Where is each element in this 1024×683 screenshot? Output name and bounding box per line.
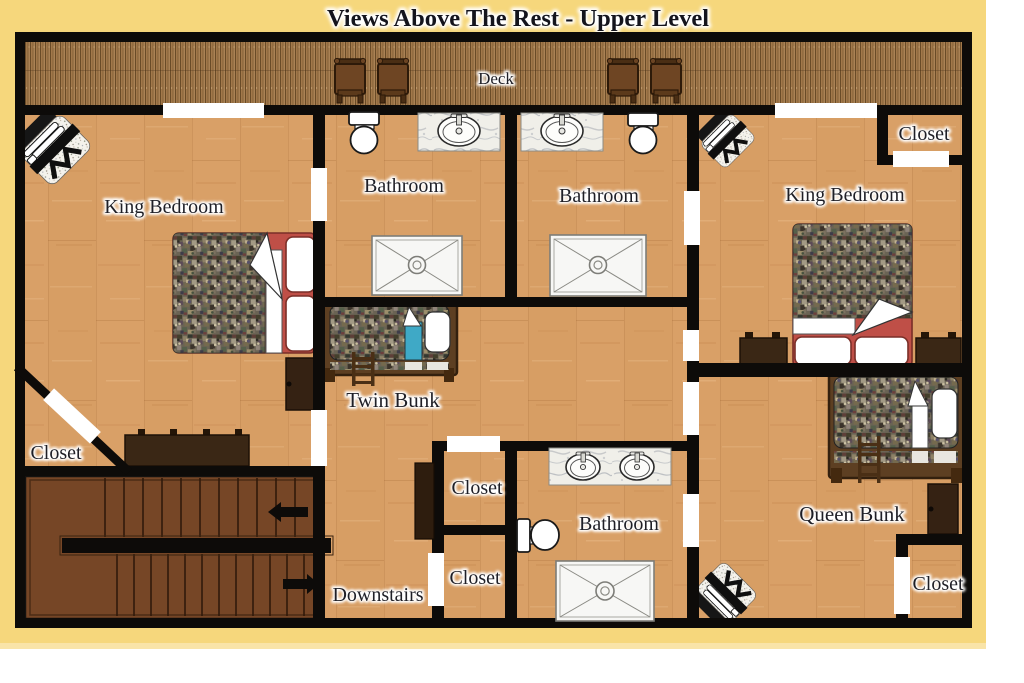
- svg-text:Closet: Closet: [451, 477, 503, 499]
- svg-text:Views Above The Rest - Upper L: Views Above The Rest - Upper Level: [327, 5, 709, 32]
- svg-text:King Bedroom: King Bedroom: [104, 196, 224, 218]
- svg-text:Closet: Closet: [30, 442, 82, 464]
- svg-text:Closet: Closet: [912, 573, 964, 595]
- svg-text:Bathroom: Bathroom: [579, 513, 659, 535]
- svg-text:King Bedroom: King Bedroom: [785, 184, 905, 206]
- svg-text:Queen Bunk: Queen Bunk: [799, 502, 905, 526]
- svg-text:Downstairs: Downstairs: [332, 584, 423, 606]
- svg-text:Bathroom: Bathroom: [364, 175, 444, 197]
- svg-text:Closet: Closet: [898, 123, 950, 145]
- svg-text:Twin Bunk: Twin Bunk: [346, 388, 440, 412]
- svg-text:Closet: Closet: [449, 567, 501, 589]
- svg-text:Bathroom: Bathroom: [559, 185, 639, 207]
- svg-text:Deck: Deck: [478, 69, 514, 88]
